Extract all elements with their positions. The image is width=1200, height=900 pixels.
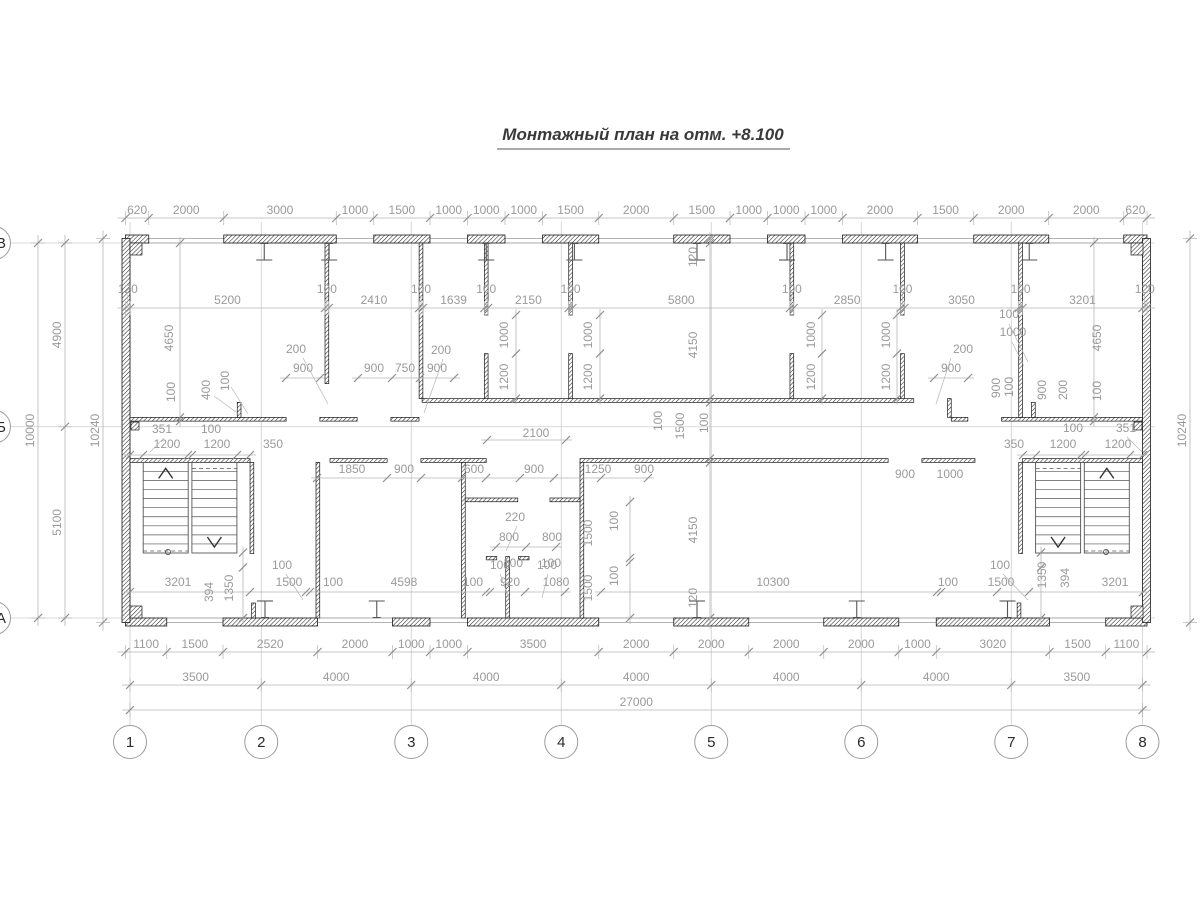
dim-label: 4650 (162, 324, 176, 351)
dim-label: 10000 (23, 413, 37, 447)
dim-label: 100 (317, 282, 337, 296)
dim-label: 100 (892, 282, 912, 296)
exterior-wall (974, 235, 1049, 243)
dim-label: 4000 (773, 670, 800, 684)
dim-label: 1000 (735, 203, 762, 217)
dim-label: 900 (1035, 380, 1049, 400)
dim-label: 100 (490, 558, 510, 572)
dim-label: 1000 (510, 203, 537, 217)
dim-label: 1500 (932, 203, 959, 217)
dim-label: 1500 (182, 637, 209, 651)
dim-label: 1000 (435, 637, 462, 651)
dim-label: 2000 (773, 637, 800, 651)
dim-label: 900 (293, 361, 313, 375)
dim-leader (214, 396, 240, 415)
dim-label: 4650 (1090, 324, 1104, 351)
exterior-wall (374, 235, 430, 243)
dim-label: 4000 (323, 670, 350, 684)
interior-wall (130, 417, 286, 421)
dim-label: 1200 (581, 363, 595, 390)
dim-label: 4900 (50, 321, 64, 348)
axis-bubble-label: 6 (857, 734, 865, 751)
drawing-title: Монтажный план на отм. +8.100 (502, 125, 784, 144)
dim-label: 100 (476, 282, 496, 296)
dim-label: 3020 (980, 637, 1007, 651)
dim-label: 1500 (689, 203, 716, 217)
dim-label: 1000 (497, 321, 511, 348)
interior-wall (948, 399, 952, 418)
dim-label: 100 (1011, 282, 1031, 296)
dim-label: 100 (272, 558, 292, 572)
dim-label: 3500 (1064, 670, 1091, 684)
dim-label: 120 (686, 247, 700, 267)
dim-label: 10240 (1175, 413, 1189, 447)
dim-label: 620 (1125, 203, 1145, 217)
dim-label: 2000 (623, 203, 650, 217)
dim-label: 1000 (773, 203, 800, 217)
interior-wall (580, 459, 888, 463)
dim-label: 2000 (342, 637, 369, 651)
exterior-wall (936, 618, 1049, 626)
dim-label: 1000 (435, 203, 462, 217)
dim-label: 2410 (361, 293, 388, 307)
axis-bubble-label: 2 (257, 734, 265, 751)
dim-label: 900 (989, 378, 1003, 398)
interior-wall (237, 402, 241, 417)
dim-label: 1080 (543, 575, 570, 589)
dim-label: 4000 (923, 670, 950, 684)
dim-label: 3201 (165, 575, 192, 589)
dim-label: 1000 (473, 203, 500, 217)
dim-label: 100 (463, 575, 483, 589)
dim-label: 800 (499, 530, 519, 544)
dim-label: 1200 (1050, 437, 1077, 451)
dim-label: 351 (152, 422, 172, 436)
interior-wall (1032, 402, 1036, 417)
dim-label: 2850 (834, 293, 861, 307)
dim-label: 620 (127, 203, 147, 217)
dim-label: 1200 (204, 437, 231, 451)
exterior-wall (768, 235, 806, 243)
dim-label: 1100 (1113, 637, 1139, 651)
dim-label: 3201 (1069, 293, 1096, 307)
dim-label: 900 (427, 361, 447, 375)
dim-label: 100 (1002, 377, 1016, 397)
dim-label: 394 (1058, 568, 1072, 588)
axis-bubble-label: Б (0, 419, 6, 436)
interior-wall (922, 459, 975, 463)
corner-column-pad (130, 243, 142, 255)
dim-label: 100 (1063, 421, 1083, 435)
dim-label: 100 (697, 413, 711, 433)
interior-wall (569, 354, 573, 399)
interior-wall (790, 354, 794, 399)
exterior-wall (393, 618, 431, 626)
dim-label: 1350 (222, 574, 236, 601)
exterior-wall (122, 239, 130, 623)
dim-leader (303, 358, 328, 404)
dim-label: 2000 (698, 637, 725, 651)
dim-label: 10300 (756, 575, 790, 589)
dim-label: 1000 (804, 321, 818, 348)
corner-column-pad (1131, 243, 1143, 255)
dim-label: 120 (118, 282, 138, 296)
dim-label: 120 (1135, 282, 1155, 296)
dim-label: 100 (218, 371, 232, 391)
dim-label: 394 (202, 582, 216, 602)
dim-label: 3000 (267, 203, 294, 217)
dim-label: 200 (1056, 380, 1070, 400)
interior-wall (130, 459, 250, 463)
dim-label: 1350 (1035, 561, 1049, 588)
dim-label: 1500 (673, 412, 687, 439)
exterior-wall (843, 235, 918, 243)
dim-label: 3050 (948, 293, 975, 307)
dim-label: 4150 (686, 516, 700, 543)
dim-label: 100 (607, 511, 621, 531)
interior-wall (462, 462, 466, 618)
interior-wall (422, 399, 914, 403)
dim-label: 2520 (257, 637, 284, 651)
dim-label: 1000 (342, 203, 369, 217)
exterior-wall (543, 235, 599, 243)
dim-label: 100 (938, 575, 958, 589)
corner-column-pad (131, 422, 139, 430)
dim-label: 1250 (585, 462, 612, 476)
dim-label: 2000 (623, 637, 650, 651)
dim-label: 100 (1090, 381, 1104, 401)
dim-label: 1000 (904, 637, 931, 651)
axis-bubble-label: 4 (557, 734, 565, 751)
exterior-wall (126, 618, 167, 626)
exterior-wall (468, 618, 599, 626)
dim-label: 900 (524, 462, 544, 476)
corner-column-pad (1131, 606, 1143, 618)
stairs-layer (143, 462, 1129, 554)
dim-label: 1500 (581, 574, 595, 601)
exterior-wall (224, 235, 337, 243)
axis-bubble-label: 1 (126, 734, 134, 751)
interior-wall (465, 498, 518, 502)
dim-label: 400 (199, 380, 213, 400)
dim-label: 100 (782, 282, 802, 296)
interior-wall (320, 417, 357, 421)
stair-post-circle (1104, 550, 1109, 555)
dim-label: 3201 (1102, 575, 1129, 589)
dim-label: 900 (941, 361, 961, 375)
dim-label: 200 (953, 342, 973, 356)
interior-wall (484, 354, 488, 399)
dim-label: 120 (686, 588, 700, 608)
axis-bubble-label: 3 (407, 734, 415, 751)
interior-wall (391, 417, 419, 421)
axis-bubbles: 12345678ВБА (0, 227, 1159, 759)
interior-wall (1022, 459, 1142, 463)
axis-bubble-label: А (0, 610, 6, 627)
floor-plan-svg: Монтажный план на отм. +8.100 6202000300… (0, 0, 1200, 900)
dim-label: 900 (895, 467, 915, 481)
dim-label: 1200 (1105, 437, 1132, 451)
dim-label: 100 (607, 566, 621, 586)
dim-label: 2000 (867, 203, 894, 217)
exterior-wall (223, 618, 318, 626)
dim-label: 1500 (1064, 637, 1091, 651)
dim-label: 100 (537, 558, 557, 572)
exterior-wall (1143, 239, 1151, 623)
dim-label: 4598 (391, 575, 418, 589)
interior-wall (550, 498, 580, 502)
stair-up-arrow-icon (1100, 468, 1114, 478)
dim-label: 1000 (398, 637, 425, 651)
corner-column-pad (130, 606, 142, 618)
dim-label: 600 (464, 462, 484, 476)
interior-wall (325, 243, 329, 384)
stair-down-arrow-icon (207, 537, 221, 547)
axis-bubble-label: 8 (1138, 734, 1146, 751)
dim-label: 1000 (581, 321, 595, 348)
dim-label: 1000 (879, 321, 893, 348)
dim-label: 351 (1116, 421, 1136, 435)
interior-wall (1017, 603, 1021, 618)
dim-label: 1200 (804, 363, 818, 390)
dim-label: 900 (634, 462, 654, 476)
drawing-page: Монтажный план на отм. +8.100 6202000300… (0, 0, 1200, 900)
dim-label: 4000 (623, 670, 650, 684)
dim-label: 2000 (1073, 203, 1100, 217)
dim-label: 2000 (998, 203, 1025, 217)
exterior-wall (824, 618, 899, 626)
dim-label: 100 (651, 411, 665, 431)
dim-label: 5100 (50, 509, 64, 536)
dim-label: 3500 (182, 670, 209, 684)
dim-label: 100 (999, 307, 1019, 321)
interior-wall (1019, 462, 1023, 553)
axis-bubble-label: 7 (1007, 734, 1015, 751)
dim-label: 5200 (214, 293, 241, 307)
dim-label: 100 (990, 558, 1010, 572)
dim-label: 2000 (848, 637, 875, 651)
dim-label: 1500 (557, 203, 584, 217)
dim-label: 1639 (440, 293, 467, 307)
dim-label: 100 (323, 575, 343, 589)
dim-label: 100 (201, 422, 221, 436)
dim-label: 3500 (520, 637, 547, 651)
interior-wall (951, 417, 968, 421)
dim-label: 1000 (937, 467, 964, 481)
dim-label: 900 (364, 361, 384, 375)
dim-label: 1200 (879, 363, 893, 390)
dim-label: 4000 (473, 670, 500, 684)
dim-label: 220 (505, 510, 525, 524)
dim-label: 2150 (515, 293, 542, 307)
dim-label: 1500 (389, 203, 416, 217)
exterior-wall (468, 235, 506, 243)
dim-label: 1200 (497, 363, 511, 390)
exterior-wall (1106, 618, 1147, 626)
axis-bubble-label: В (0, 235, 6, 252)
axis-bubble-label: 5 (707, 734, 715, 751)
dim-label: 100 (411, 282, 431, 296)
dim-label: 2000 (173, 203, 200, 217)
exterior-wall (674, 235, 730, 243)
dim-label: 800 (542, 530, 562, 544)
dim-label: 1850 (339, 462, 366, 476)
dim-label: 5800 (668, 293, 695, 307)
interior-wall (250, 462, 254, 553)
dim-label: 350 (263, 437, 283, 451)
interior-wall (252, 603, 256, 618)
dim-label: 1000 (810, 203, 837, 217)
dim-label: 2100 (523, 426, 550, 440)
dim-label: 100 (561, 282, 581, 296)
dim-label: 10240 (88, 413, 102, 447)
interior-wall (901, 354, 905, 399)
dim-label: 200 (286, 342, 306, 356)
dim-label: 1100 (133, 637, 159, 651)
dim-label: 900 (394, 462, 414, 476)
dim-label: 350 (1004, 437, 1024, 451)
dim-label: 1500 (581, 519, 595, 546)
dim-label: 27000 (620, 695, 654, 709)
dim-label: 750 (395, 361, 415, 375)
dim-label: 1500 (276, 575, 303, 589)
stair-down-arrow-icon (1051, 537, 1065, 547)
dim-label: 4150 (686, 331, 700, 358)
stair-post-circle (166, 550, 171, 555)
dim-label: 100 (164, 382, 178, 402)
interior-wall (316, 462, 320, 618)
stair-up-arrow-icon (159, 468, 173, 478)
dim-label: 200 (431, 343, 451, 357)
